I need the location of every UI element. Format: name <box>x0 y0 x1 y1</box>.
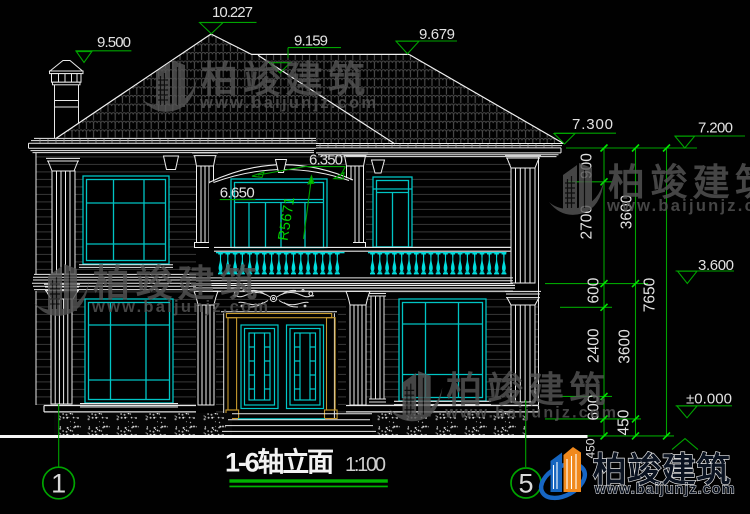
svg-text:6.650: 6.650 <box>220 185 255 202</box>
svg-text:7.200: 7.200 <box>698 120 733 137</box>
svg-text:1:100: 1:100 <box>345 454 386 476</box>
svg-text:6.350: 6.350 <box>309 152 343 169</box>
svg-text:3.600: 3.600 <box>698 257 734 274</box>
svg-text:9.679: 9.679 <box>419 26 455 43</box>
svg-text:±0.000: ±0.000 <box>686 391 732 408</box>
svg-text:www.baijunjz.com: www.baijunjz.com <box>594 482 735 498</box>
svg-text:5: 5 <box>518 469 533 499</box>
svg-text:9.159: 9.159 <box>294 33 328 50</box>
svg-text:1: 1 <box>51 469 66 499</box>
svg-text:7650: 7650 <box>642 277 659 312</box>
svg-text:3600: 3600 <box>617 329 634 364</box>
svg-text:450: 450 <box>616 409 633 435</box>
svg-text:1-6轴立面: 1-6轴立面 <box>225 447 334 478</box>
svg-text:7.300: 7.300 <box>572 116 613 133</box>
svg-text:2400: 2400 <box>586 328 603 363</box>
svg-text:10.227: 10.227 <box>212 4 253 21</box>
svg-text:9.500: 9.500 <box>97 34 131 51</box>
svg-text:600: 600 <box>586 277 603 303</box>
